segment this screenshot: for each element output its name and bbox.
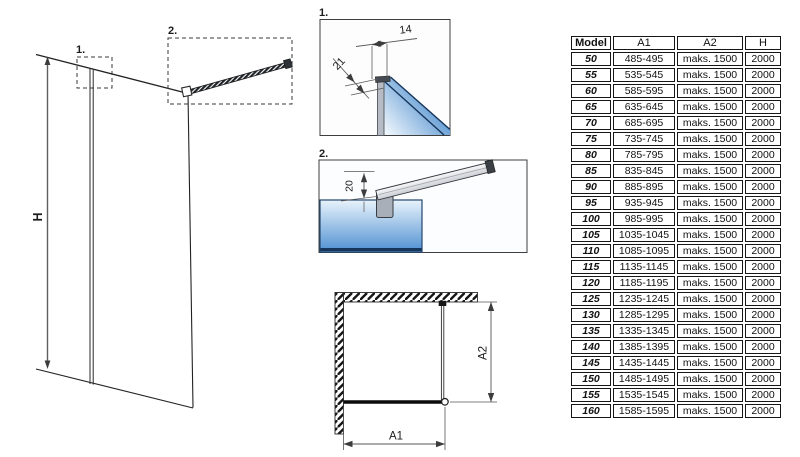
table-cell: maks. 1500: [677, 388, 743, 402]
table-cell: 65: [571, 100, 611, 114]
table-cell: maks. 1500: [677, 164, 743, 178]
technical-drawing-sheet: H 1. 2. 1.: [0, 0, 800, 457]
table-row: 1251235-1245maks. 15002000: [571, 292, 781, 306]
table-row: 80785-795maks. 15002000: [571, 148, 781, 162]
detail-2-view: 2. 20: [312, 146, 534, 258]
table-cell: maks. 1500: [677, 84, 743, 98]
table-cell: 735-745: [613, 132, 675, 146]
table-cell: 2000: [745, 212, 781, 226]
table-cell: 935-945: [613, 196, 675, 210]
table-cell: 2000: [745, 132, 781, 146]
table-cell: maks. 1500: [677, 100, 743, 114]
col-header-a1: A1: [613, 36, 675, 50]
table-cell: 145: [571, 356, 611, 370]
table-cell: 1335-1345: [613, 324, 675, 338]
dim-14-label: 14: [399, 23, 413, 36]
table-row: 1151135-1145maks. 15002000: [571, 260, 781, 274]
table-cell: 1035-1045: [613, 228, 675, 242]
spec-table: Model A1 A2 H 50485-495maks. 15002000555…: [569, 34, 783, 420]
table-cell: maks. 1500: [677, 68, 743, 82]
table-cell: 1135-1145: [613, 260, 675, 274]
spec-table-header: Model A1 A2 H: [571, 36, 781, 50]
table-row: 1101085-1095maks. 15002000: [571, 244, 781, 258]
table-cell: 100: [571, 212, 611, 226]
table-cell: maks. 1500: [677, 244, 743, 258]
support-bar: [182, 59, 293, 97]
table-cell: maks. 1500: [677, 132, 743, 146]
table-cell: 1085-1095: [613, 244, 675, 258]
main-isometric-view: H 1. 2.: [0, 0, 310, 457]
table-cell: 885-895: [613, 180, 675, 194]
table-row: 1351335-1345maks. 15002000: [571, 324, 781, 338]
table-row: 1201185-1195maks. 15002000: [571, 276, 781, 290]
table-cell: 835-845: [613, 164, 675, 178]
table-cell: 2000: [745, 324, 781, 338]
table-cell: 70: [571, 116, 611, 130]
detail-2-marker: 2.: [168, 25, 177, 37]
table-row: 85835-845maks. 15002000: [571, 164, 781, 178]
table-cell: maks. 1500: [677, 260, 743, 274]
table-cell: 95: [571, 196, 611, 210]
dim-20-label: 20: [344, 180, 356, 192]
table-cell: 785-795: [613, 148, 675, 162]
table-row: 1501485-1495maks. 15002000: [571, 372, 781, 386]
table-cell: 2000: [745, 164, 781, 178]
arrow-down-icon: [45, 361, 51, 370]
table-cell: 985-995: [613, 212, 675, 226]
h-dimension-label: H: [31, 212, 45, 221]
table-cell: 60: [571, 84, 611, 98]
table-cell: 2000: [745, 276, 781, 290]
col-header-a2: A2: [677, 36, 743, 50]
table-cell: maks. 1500: [677, 324, 743, 338]
table-cell: 1185-1195: [613, 276, 675, 290]
table-cell: 90: [571, 180, 611, 194]
detail-1-marker: 1.: [76, 44, 85, 56]
table-row: 50485-495maks. 15002000: [571, 52, 781, 66]
table-cell: maks. 1500: [677, 292, 743, 306]
table-cell: 2000: [745, 116, 781, 130]
table-cell: 50: [571, 52, 611, 66]
col-header-h: H: [745, 36, 781, 50]
table-cell: 110: [571, 244, 611, 258]
wall-profile-lines: [90, 69, 93, 385]
table-row: 1601585-1595maks. 15002000: [571, 404, 781, 418]
table-row: 1551535-1545maks. 15002000: [571, 388, 781, 402]
table-cell: maks. 1500: [677, 340, 743, 354]
table-row: 55535-545maks. 15002000: [571, 68, 781, 82]
glass-panel-outline: [36, 55, 193, 409]
table-row: 60585-595maks. 15002000: [571, 84, 781, 98]
table-cell: 125: [571, 292, 611, 306]
spec-table-body: 50485-495maks. 1500200055535-545maks. 15…: [571, 52, 781, 418]
table-row: 95935-945maks. 15002000: [571, 196, 781, 210]
dim-a2-label: A2: [478, 346, 490, 360]
glass-clamp: [182, 86, 192, 97]
table-cell: maks. 1500: [677, 276, 743, 290]
table-cell: 635-645: [613, 100, 675, 114]
dim-a1-label: A1: [389, 431, 403, 443]
table-cell: 155: [571, 388, 611, 402]
table-cell: 2000: [745, 308, 781, 322]
dim-a2: [450, 302, 497, 402]
table-cell: 85: [571, 164, 611, 178]
table-cell: 535-545: [613, 68, 675, 82]
table-cell: 1285-1295: [613, 308, 675, 322]
table-cell: maks. 1500: [677, 372, 743, 386]
table-row: 70685-695maks. 15002000: [571, 116, 781, 130]
table-cell: 105: [571, 228, 611, 242]
table-cell: 140: [571, 340, 611, 354]
table-cell: 2000: [745, 340, 781, 354]
table-cell: 2000: [745, 52, 781, 66]
table-cell: 2000: [745, 292, 781, 306]
support-bar-plan: [441, 302, 443, 400]
table-cell: 2000: [745, 196, 781, 210]
table-cell: 150: [571, 372, 611, 386]
table-cell: 120: [571, 276, 611, 290]
table-row: 1451435-1445maks. 15002000: [571, 356, 781, 370]
table-cell: maks. 1500: [677, 308, 743, 322]
table-cell: maks. 1500: [677, 212, 743, 226]
table-cell: maks. 1500: [677, 404, 743, 418]
detail-1-label: 1.: [319, 7, 328, 19]
table-cell: 685-695: [613, 116, 675, 130]
table-cell: 1435-1445: [613, 356, 675, 370]
bar-wall-mount-plan: [439, 301, 447, 306]
table-row: 1401385-1395maks. 15002000: [571, 340, 781, 354]
table-cell: 1485-1495: [613, 372, 675, 386]
table-cell: 2000: [745, 244, 781, 258]
table-cell: 2000: [745, 180, 781, 194]
table-cell: maks. 1500: [677, 116, 743, 130]
table-cell: 1385-1395: [613, 340, 675, 354]
table-cell: 2000: [745, 388, 781, 402]
table-cell: 2000: [745, 260, 781, 274]
table-cell: maks. 1500: [677, 180, 743, 194]
table-cell: 130: [571, 308, 611, 322]
table-cell: 135: [571, 324, 611, 338]
table-cell: 160: [571, 404, 611, 418]
table-cell: 2000: [745, 356, 781, 370]
table-cell: 485-495: [613, 52, 675, 66]
table-cell: 1585-1595: [613, 404, 675, 418]
detail-1-view: 1. 14 21: [312, 4, 458, 142]
table-cell: 2000: [745, 100, 781, 114]
table-cell: maks. 1500: [677, 148, 743, 162]
table-row: 100985-995maks. 15002000: [571, 212, 781, 226]
table-cell: maks. 1500: [677, 196, 743, 210]
col-header-model: Model: [571, 36, 611, 50]
table-row: 75735-745maks. 15002000: [571, 132, 781, 146]
table-cell: 2000: [745, 68, 781, 82]
table-cell: 2000: [745, 84, 781, 98]
table-row: 65635-645maks. 15002000: [571, 100, 781, 114]
table-cell: 75: [571, 132, 611, 146]
table-cell: 80: [571, 148, 611, 162]
table-row: 1051035-1045maks. 15002000: [571, 228, 781, 242]
table-cell: 1235-1245: [613, 292, 675, 306]
plan-view: A1 A2: [325, 278, 507, 457]
table-cell: 115: [571, 260, 611, 274]
detail-2-label: 2.: [319, 148, 328, 160]
table-cell: 55: [571, 68, 611, 82]
table-cell: maks. 1500: [677, 52, 743, 66]
table-cell: 2000: [745, 404, 781, 418]
wall-left: [335, 293, 344, 435]
table-cell: 2000: [745, 148, 781, 162]
bar-clamp-plan: [442, 399, 449, 406]
table-cell: 1535-1545: [613, 388, 675, 402]
table-cell: maks. 1500: [677, 228, 743, 242]
table-cell: 585-595: [613, 84, 675, 98]
h-dimension: H: [31, 57, 50, 370]
table-row: 90885-895maks. 15002000: [571, 180, 781, 194]
table-cell: 2000: [745, 228, 781, 242]
table-cell: 2000: [745, 372, 781, 386]
table-cell: maks. 1500: [677, 356, 743, 370]
dim-a1: [344, 407, 446, 450]
glass-pane-top: [320, 200, 422, 252]
table-row: 1301285-1295maks. 15002000: [571, 308, 781, 322]
wall-top: [335, 293, 478, 303]
